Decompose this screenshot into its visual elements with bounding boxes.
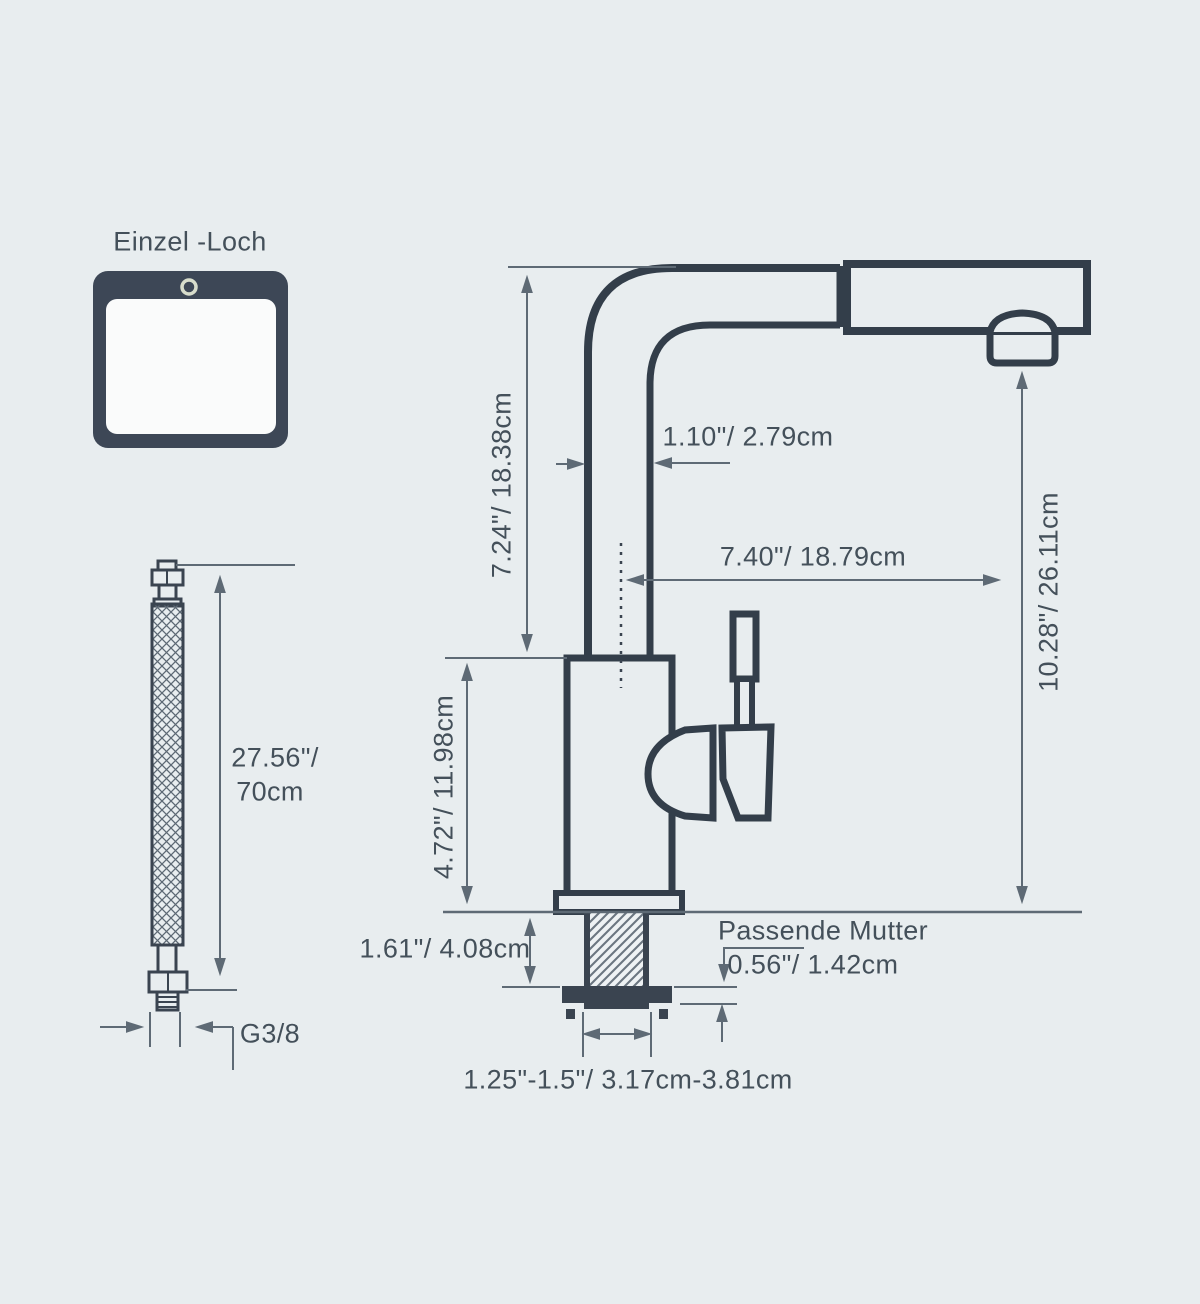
- label-spout-reach: 7.40"/ 18.79cm: [720, 541, 906, 572]
- label-hose-length-cm: 70cm: [236, 776, 304, 807]
- label-overall-height: 10.28"/ 26.11cm: [1033, 492, 1064, 692]
- mounting-nut: [562, 986, 672, 1003]
- label-body-height: 4.72"/ 11.98cm: [428, 695, 459, 879]
- supply-hose-drawing: [149, 561, 187, 1010]
- label-hose-connector-thread: G3/8: [240, 1018, 300, 1049]
- label-hose-length-inches: 27.56"/: [231, 742, 318, 773]
- handle-body: [722, 727, 771, 818]
- faucet-drawing: [556, 264, 1087, 912]
- label-spout-tube-width: 1.10"/ 2.79cm: [663, 421, 834, 452]
- sink-hole-label: Einzel -Loch: [113, 226, 266, 257]
- label-shank-length: 1.61"/ 4.08cm: [360, 933, 531, 964]
- label-hole-diameter-range: 1.25"-1.5"/ 3.17cm-3.81cm: [463, 1064, 792, 1095]
- handle-lever-upper: [733, 614, 756, 679]
- shank-and-nut-drawing: [562, 913, 672, 1019]
- technical-line-drawing: [0, 0, 1200, 1304]
- faucet-dimension-diagram: Einzel -Loch 7.24"/ 18.38cm 1.10"/ 2.79c…: [0, 0, 1200, 1304]
- handle-lever-lower: [737, 679, 752, 730]
- label-spout-height: 7.24"/ 18.38cm: [486, 392, 517, 578]
- sink-cutout-drawing: [93, 271, 288, 448]
- label-nut-height: 0.56"/ 1.42cm: [728, 949, 899, 980]
- sink-inner: [106, 299, 276, 434]
- base-plate: [556, 893, 682, 912]
- threaded-shank: [584, 913, 649, 987]
- braided-hose: [152, 604, 183, 945]
- label-fitting-nut: Passende Mutter: [718, 915, 928, 946]
